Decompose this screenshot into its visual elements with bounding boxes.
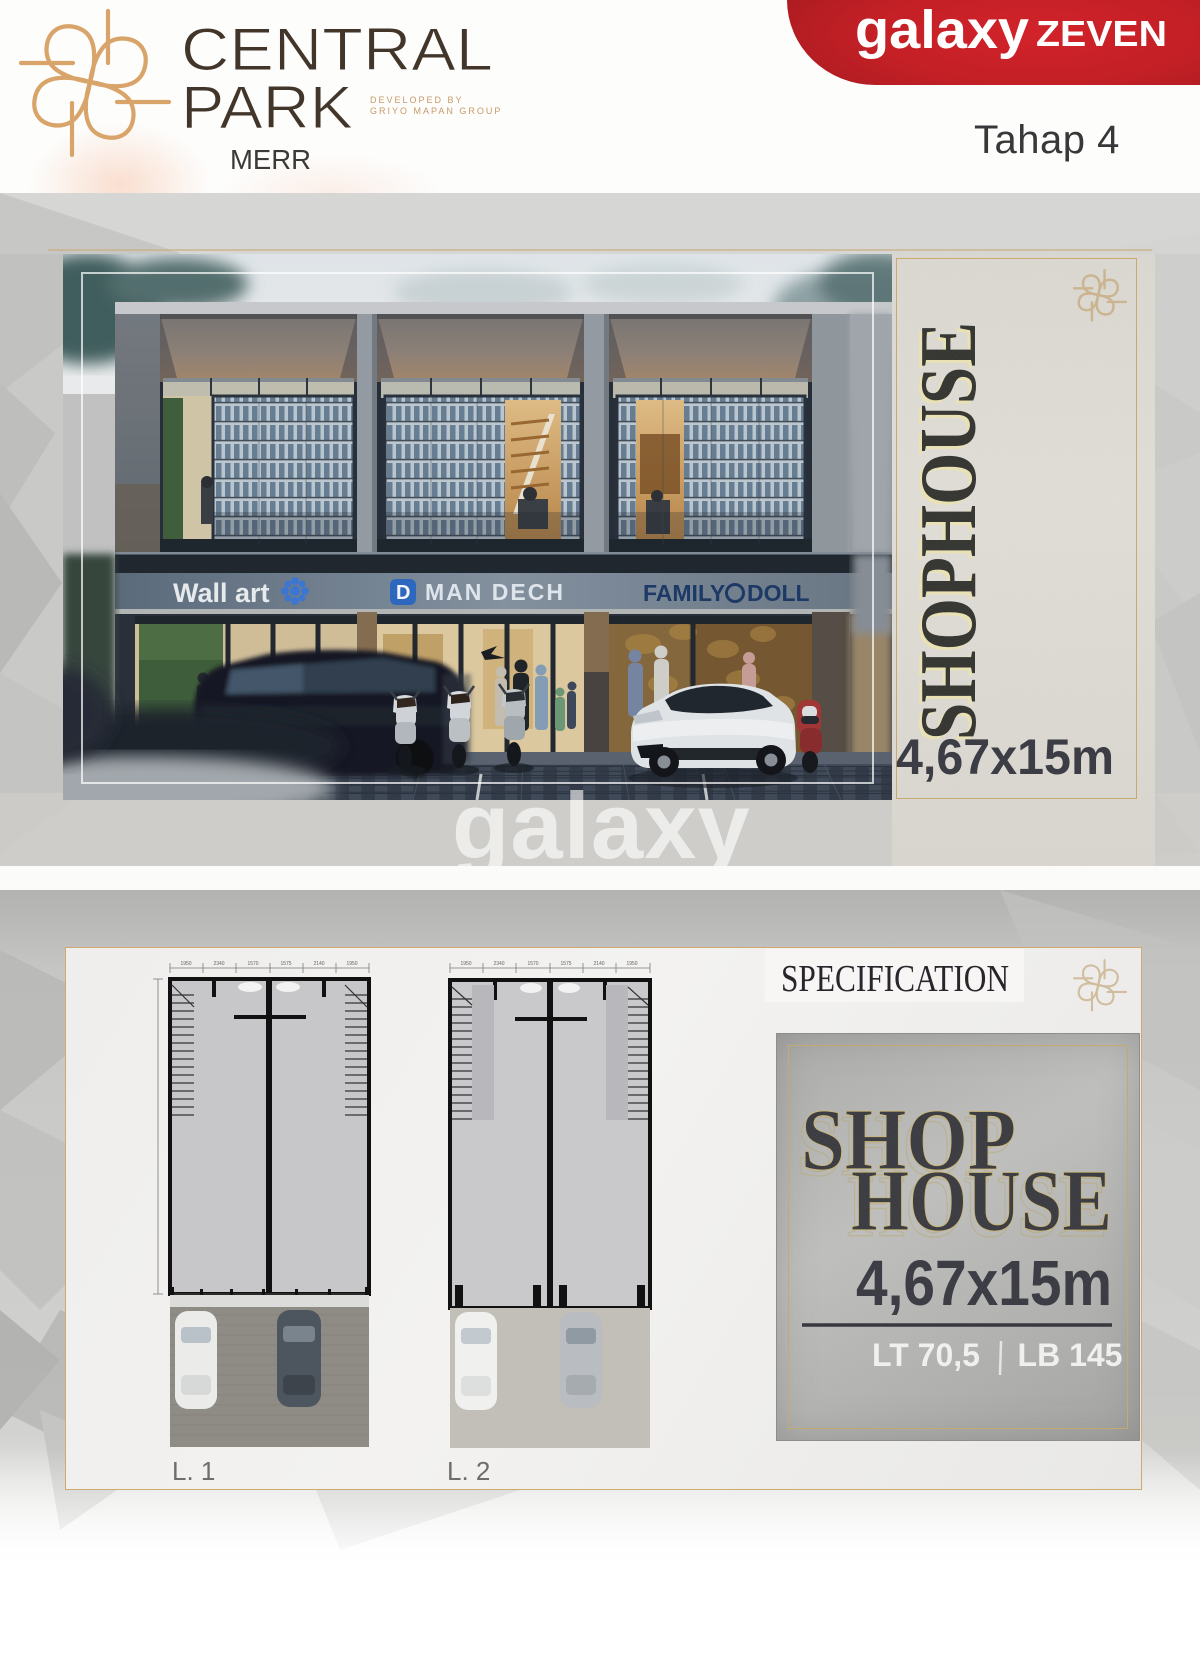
svg-text:1570: 1570 xyxy=(247,961,258,967)
svg-text:galaxy: galaxy xyxy=(855,0,1029,60)
svg-text:2340: 2340 xyxy=(493,961,504,967)
svg-text:1950: 1950 xyxy=(180,961,191,967)
svg-text:2340: 2340 xyxy=(213,961,224,967)
svg-text:2140: 2140 xyxy=(313,961,324,967)
svg-text:PARK: PARK xyxy=(181,76,353,138)
svg-text:MERR: MERR xyxy=(230,144,311,175)
svg-text:2140: 2140 xyxy=(593,961,604,967)
svg-text:L. 2: L. 2 xyxy=(447,1456,490,1486)
svg-text:1575: 1575 xyxy=(280,961,291,967)
svg-text:1575: 1575 xyxy=(560,961,571,967)
svg-text:SPECIFICATION: SPECIFICATION xyxy=(781,958,1009,1000)
svg-text:L. 1: L. 1 xyxy=(172,1456,215,1486)
svg-text:1950: 1950 xyxy=(626,961,637,967)
svg-text:1950: 1950 xyxy=(460,961,471,967)
svg-text:CENTRAL: CENTRAL xyxy=(181,18,493,80)
svg-text:1950: 1950 xyxy=(346,961,357,967)
svg-text:1570: 1570 xyxy=(527,961,538,967)
svg-text:ZEVEN: ZEVEN xyxy=(1036,13,1167,54)
